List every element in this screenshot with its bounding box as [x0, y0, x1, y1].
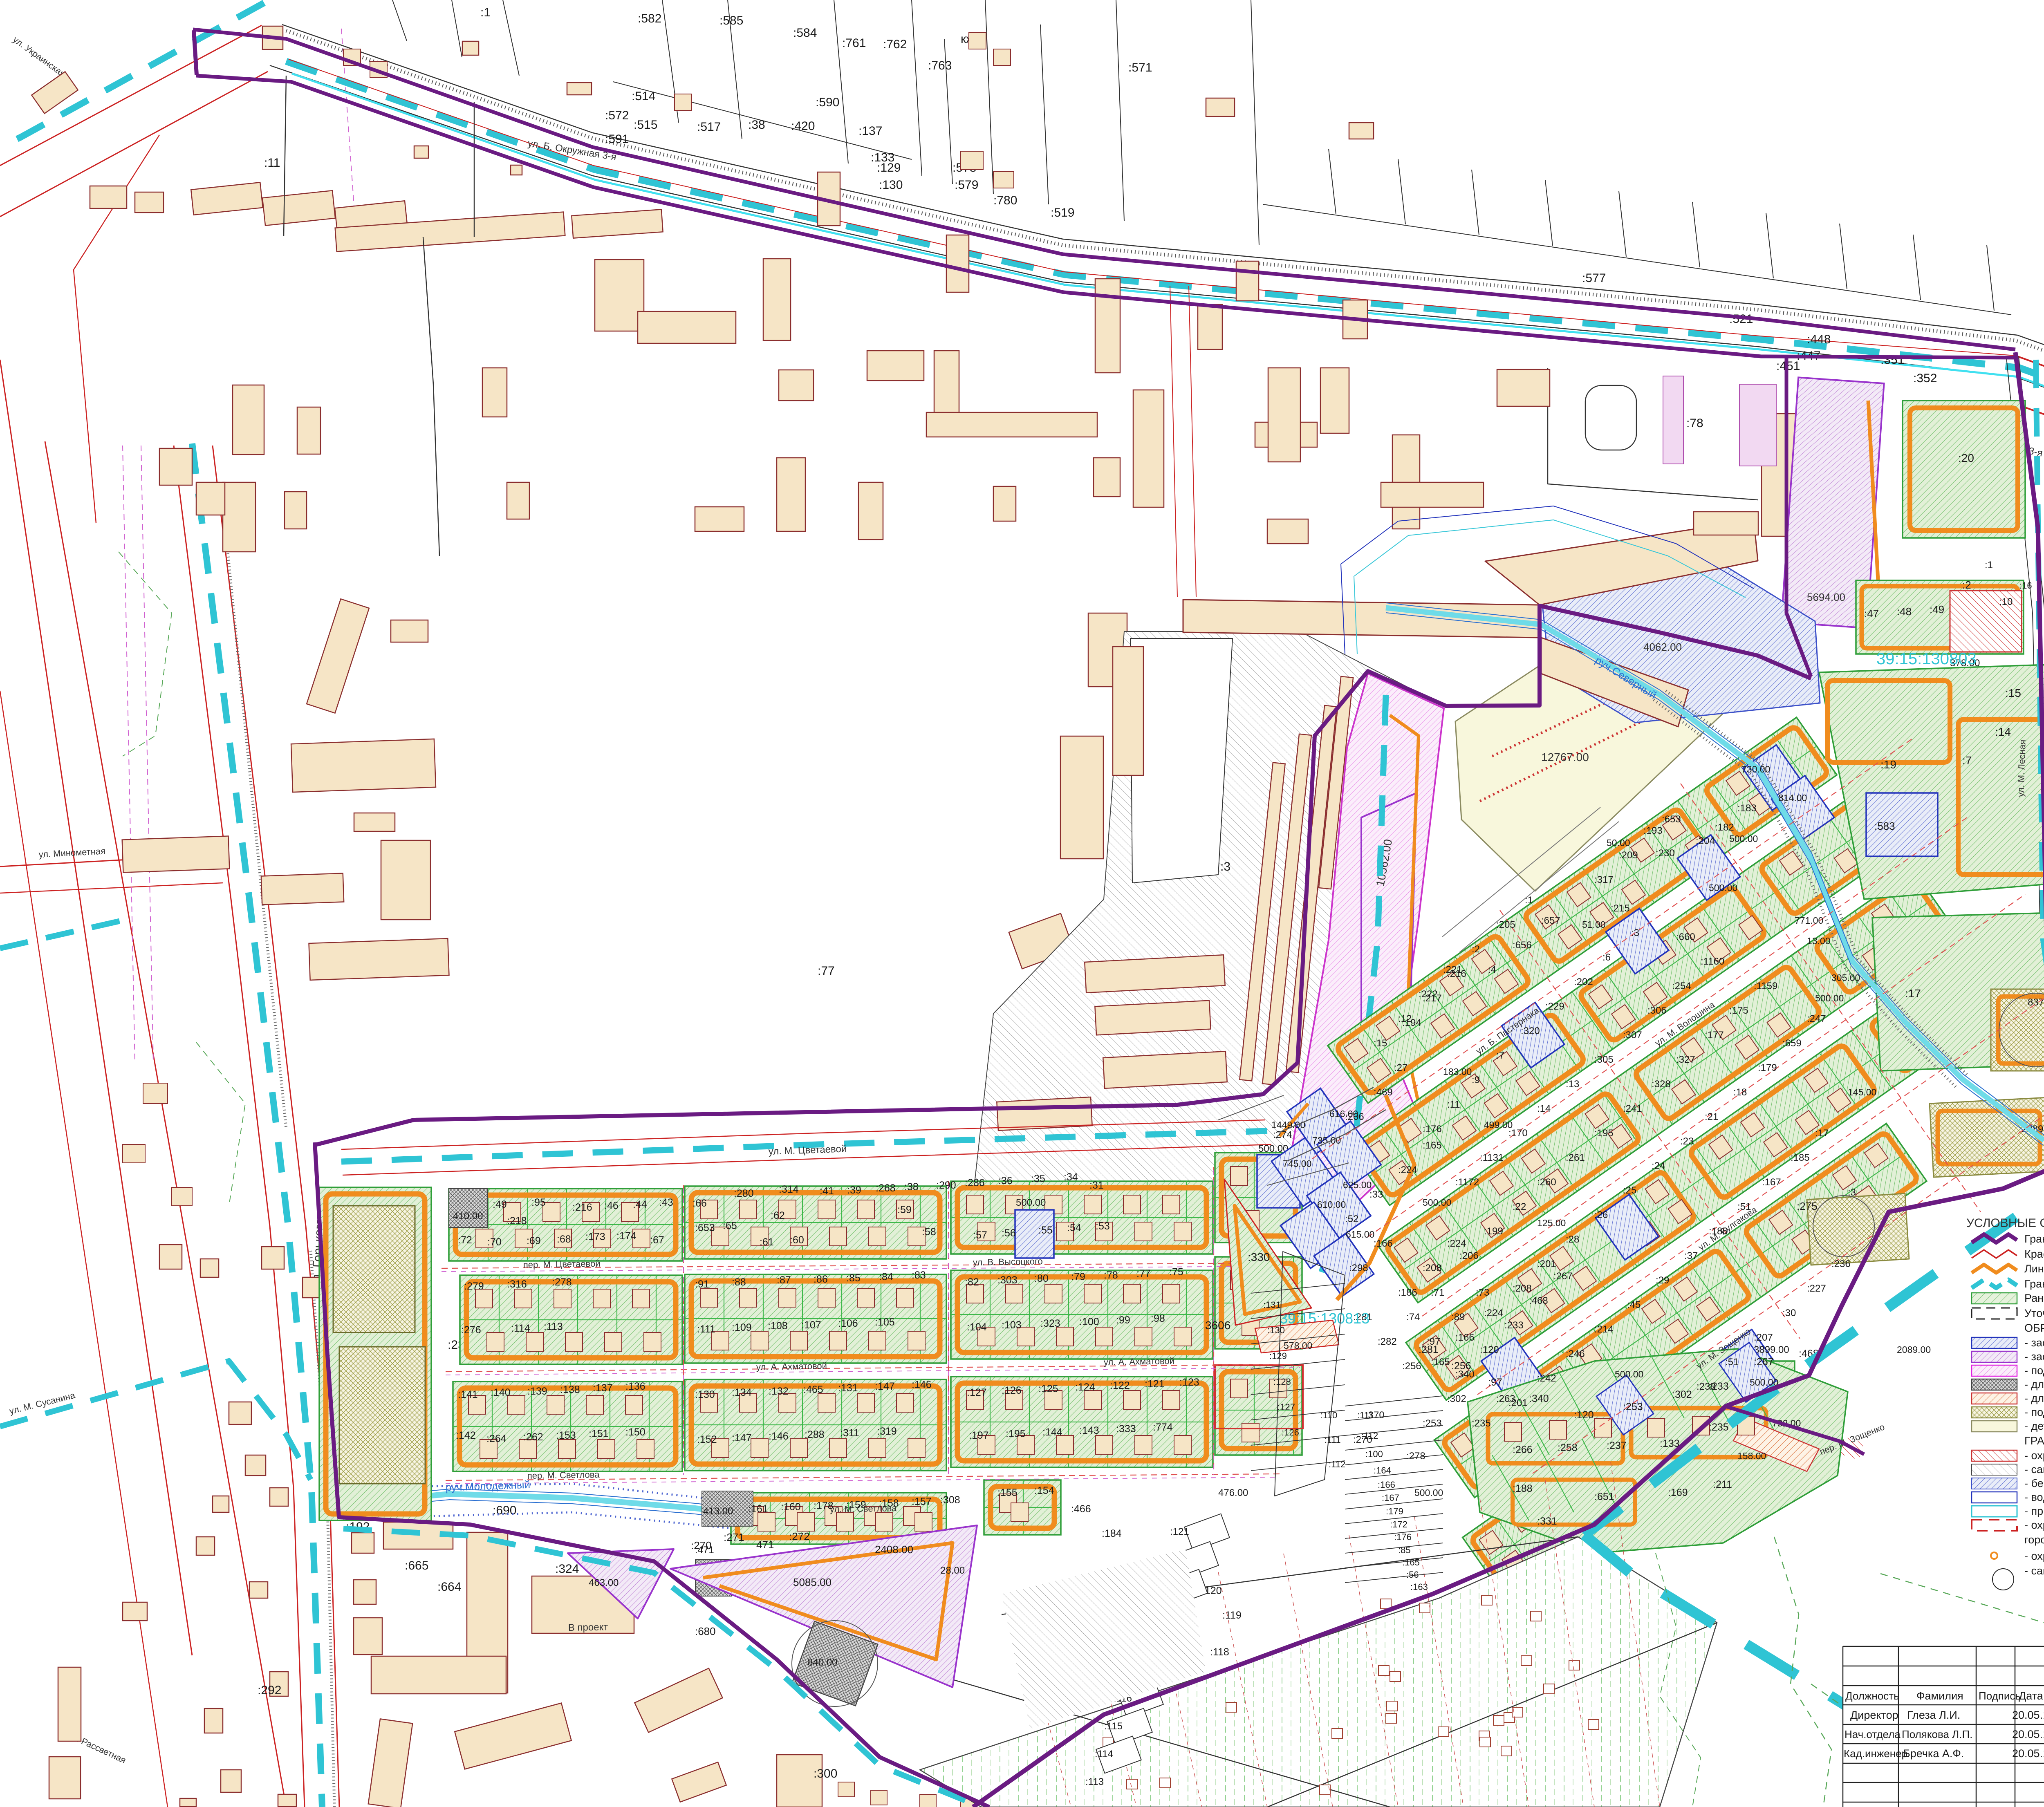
svg-text::279: :279	[464, 1281, 484, 1292]
svg-text::233: :233	[1504, 1320, 1524, 1331]
svg-text:463.00: 463.00	[589, 1577, 619, 1588]
svg-text:20.05.13: 20.05.13	[2012, 1728, 2044, 1740]
svg-text::176: :176	[1394, 1532, 1412, 1542]
svg-text:28.00: 28.00	[940, 1565, 965, 1576]
svg-text::577: :577	[1582, 271, 1606, 285]
svg-text::140: :140	[491, 1387, 511, 1398]
svg-text::237: :237	[1607, 1440, 1627, 1451]
svg-text:625.00: 625.00	[1343, 1180, 1372, 1190]
svg-text:- под строительство объектов з: - под строительство объектов зоны застро…	[2024, 1364, 2044, 1377]
svg-text::224: :224	[1447, 1238, 1466, 1249]
svg-text::52: :52	[1345, 1214, 1358, 1225]
svg-text:- застройка индивидуальными жи: - застройка индивидуальными жилыми домам…	[2024, 1337, 2044, 1349]
svg-text::131: :131	[838, 1382, 858, 1394]
svg-text::308: :308	[940, 1494, 960, 1506]
svg-text::56: :56	[1406, 1570, 1419, 1580]
svg-text::204: :204	[1696, 835, 1715, 846]
svg-text::70: :70	[487, 1236, 502, 1248]
svg-text::656: :656	[1513, 940, 1532, 951]
svg-text::62: :62	[771, 1210, 785, 1221]
svg-text::165: :165	[1423, 1140, 1442, 1151]
svg-text::73: :73	[1476, 1287, 1489, 1298]
svg-text:- охранная зона геодезического: - охранная зона геодезического пункта (П…	[2024, 1550, 2044, 1562]
svg-text::205: :205	[1496, 919, 1515, 930]
svg-text:499.00: 499.00	[1484, 1120, 1513, 1130]
svg-text::113: :113	[544, 1321, 563, 1332]
svg-text::182: :182	[1715, 822, 1734, 833]
svg-text::30: :30	[1782, 1308, 1796, 1319]
svg-text::110: :110	[1320, 1410, 1337, 1420]
svg-text::89: :89	[1451, 1312, 1465, 1323]
svg-text::292: :292	[258, 1684, 281, 1697]
svg-text::103: :103	[1002, 1319, 1022, 1331]
svg-text::12: :12	[1398, 1013, 1412, 1024]
svg-text:814.00: 814.00	[1778, 793, 1807, 803]
svg-text::276: :276	[461, 1324, 481, 1336]
svg-text::111: :111	[697, 1323, 715, 1335]
svg-text::55: :55	[1038, 1225, 1053, 1236]
svg-text::100: :100	[1079, 1316, 1099, 1328]
svg-text::202: :202	[1574, 976, 1593, 987]
svg-text:616.00: 616.00	[1329, 1108, 1358, 1119]
svg-text::6: :6	[1602, 952, 1611, 963]
svg-text::306: :306	[1647, 1005, 1667, 1016]
svg-text:840.00: 840.00	[807, 1657, 837, 1668]
svg-text::3: :3	[1631, 927, 1639, 938]
svg-text::183: :183	[1737, 803, 1757, 814]
svg-text::38: :38	[904, 1181, 919, 1193]
svg-text::51: :51	[1725, 1357, 1739, 1368]
svg-text::154: :154	[1034, 1485, 1054, 1496]
svg-text::763: :763	[928, 59, 952, 72]
svg-text::28: :28	[1566, 1234, 1579, 1245]
svg-text::324: :324	[555, 1562, 579, 1576]
svg-text:183.00: 183.00	[1443, 1066, 1472, 1077]
svg-text::175: :175	[1729, 1005, 1748, 1016]
svg-text::142: :142	[456, 1430, 476, 1441]
svg-text::331: :331	[1537, 1516, 1557, 1527]
svg-text::582: :582	[638, 12, 661, 25]
svg-text:- водоохранная зона: - водоохранная зона	[2024, 1491, 2044, 1503]
svg-text::49: :49	[493, 1199, 507, 1210]
svg-text::31: :31	[1089, 1180, 1104, 1191]
svg-text::77: :77	[1136, 1268, 1151, 1279]
svg-text::320: :320	[1521, 1026, 1540, 1037]
svg-text::176: :176	[1423, 1124, 1442, 1135]
svg-text::665: :665	[405, 1559, 428, 1572]
svg-text::166: :166	[1378, 1480, 1395, 1490]
svg-text::328: :328	[1652, 1079, 1671, 1090]
svg-text::169: :169	[1668, 1487, 1688, 1498]
svg-text::136: :136	[625, 1381, 645, 1392]
svg-text::79: :79	[1071, 1271, 1085, 1283]
svg-text::266: :266	[1513, 1444, 1533, 1455]
svg-text:Ранее образованные и зарегистр: Ранее образованные и зарегистрированные …	[2024, 1292, 2044, 1304]
svg-text::571: :571	[1128, 61, 1152, 74]
svg-text:745.00: 745.00	[1283, 1158, 1311, 1169]
svg-text::112: :112	[1329, 1459, 1345, 1469]
svg-text::127: :127	[1277, 1402, 1295, 1412]
svg-text::288: :288	[805, 1429, 825, 1440]
svg-text::517: :517	[697, 120, 721, 134]
svg-text::774: :774	[1153, 1422, 1173, 1433]
svg-text::227: :227	[1807, 1283, 1826, 1294]
svg-text::280: :280	[734, 1188, 754, 1199]
svg-text::314: :314	[779, 1184, 799, 1195]
svg-text::95: :95	[531, 1197, 546, 1208]
svg-text::208: :208	[1513, 1283, 1532, 1294]
svg-text::201: :201	[1537, 1258, 1556, 1270]
svg-text:Должность: Должность	[1845, 1690, 1899, 1702]
svg-text:610.00: 610.00	[1317, 1199, 1346, 1210]
svg-text::80: :80	[1034, 1273, 1049, 1284]
svg-text::222: :222	[1419, 989, 1438, 1000]
svg-text::221: :221	[1443, 964, 1462, 975]
svg-text::75: :75	[1169, 1266, 1183, 1278]
svg-text::261: :261	[1566, 1152, 1585, 1163]
svg-text::659: :659	[1782, 1038, 1802, 1049]
svg-text::127: :127	[967, 1387, 987, 1398]
svg-text::311: :311	[840, 1427, 859, 1439]
svg-text::35: :35	[1031, 1173, 1045, 1185]
svg-text:- санитарно-защитная зона: - санитарно-защитная зона	[2024, 1463, 2044, 1476]
svg-text::65: :65	[723, 1220, 737, 1232]
svg-text::307: :307	[1623, 1030, 1642, 1041]
svg-text:500.00: 500.00	[1615, 1369, 1643, 1379]
svg-text::184: :184	[1102, 1528, 1122, 1539]
svg-text:Линия отступа от красных линий: Линия отступа от красных линий	[2024, 1263, 2044, 1275]
svg-text::303: :303	[997, 1274, 1018, 1286]
svg-text::108: :108	[768, 1320, 788, 1332]
svg-text::448: :448	[1807, 333, 1831, 346]
svg-text::762: :762	[883, 38, 907, 51]
svg-text::57: :57	[973, 1229, 987, 1241]
svg-text:5694.00: 5694.00	[1807, 591, 1845, 603]
svg-text::114: :114	[1095, 1749, 1113, 1760]
svg-text:ул. А. Ахматовой: ул. А. Ахматовой	[756, 1361, 827, 1372]
svg-text:- под городские скверы, объект: - под городские скверы, объекты озеленен…	[2024, 1406, 2044, 1418]
svg-text::305: :305	[1594, 1054, 1614, 1065]
svg-text::246: :246	[1566, 1348, 1585, 1359]
svg-text::77: :77	[818, 964, 835, 978]
svg-text::98: :98	[1151, 1313, 1165, 1324]
svg-text::146: :146	[912, 1379, 932, 1391]
svg-text:500.00: 500.00	[1815, 993, 1844, 1003]
svg-text::690: :690	[493, 1504, 516, 1517]
svg-text::120: :120	[1480, 1344, 1499, 1355]
svg-text:13.00: 13.00	[1807, 936, 1831, 946]
svg-text::104: :104	[967, 1321, 987, 1333]
svg-text::128: :128	[1273, 1377, 1291, 1387]
svg-text::49: :49	[1930, 603, 1944, 616]
svg-text::14: :14	[1995, 725, 2011, 738]
svg-text:4062.00: 4062.00	[1643, 641, 1682, 653]
svg-text::153: :153	[556, 1430, 576, 1441]
svg-text::126: :126	[1282, 1427, 1299, 1438]
svg-text::254: :254	[1672, 981, 1691, 992]
svg-text:- для перераспределения: - для перераспределения	[2024, 1392, 2044, 1404]
svg-text::15: :15	[2005, 687, 2021, 699]
svg-text:578.00: 578.00	[1284, 1340, 1312, 1351]
svg-text::120: :120	[1574, 1409, 1594, 1421]
svg-text::340: :340	[1529, 1393, 1549, 1404]
svg-text:Подпись: Подпись	[1979, 1690, 2021, 1702]
svg-text::118: :118	[1210, 1646, 1229, 1658]
svg-text::129: :129	[1269, 1351, 1287, 1361]
svg-text::209: :209	[1619, 850, 1638, 861]
svg-text::179: :179	[1758, 1062, 1777, 1073]
svg-text::124: :124	[1075, 1382, 1095, 1393]
svg-text::22: :22	[1513, 1201, 1526, 1212]
svg-text::2: :2	[1472, 944, 1480, 955]
svg-text::68: :68	[557, 1234, 571, 1245]
svg-text::653: :653	[695, 1222, 715, 1234]
svg-text::121: :121	[1145, 1378, 1165, 1390]
svg-text::17: :17	[1815, 1128, 1829, 1139]
svg-text::761: :761	[842, 36, 866, 50]
svg-text:В проект: В проект	[568, 1621, 608, 1633]
svg-text::651: :651	[1594, 1491, 1614, 1502]
svg-text::160: :160	[781, 1501, 801, 1513]
svg-text::113: :113	[1085, 1776, 1104, 1787]
svg-text::211: :211	[1713, 1479, 1732, 1490]
svg-text::99: :99	[1116, 1314, 1130, 1326]
svg-text::657: :657	[1541, 915, 1560, 926]
svg-text:476.00: 476.00	[1218, 1487, 1248, 1498]
svg-text::271: :271	[724, 1531, 744, 1543]
svg-text::333: :333	[1116, 1423, 1136, 1435]
svg-text::1: :1	[480, 6, 491, 19]
svg-text::85: :85	[846, 1272, 861, 1284]
svg-text::780: :780	[993, 194, 1017, 207]
svg-text::150: :150	[625, 1426, 645, 1438]
svg-text::71: :71	[1431, 1287, 1444, 1298]
svg-text::34: :34	[1064, 1171, 1078, 1183]
svg-text::44: :44	[633, 1199, 647, 1210]
svg-text:3606: 3606	[1205, 1319, 1230, 1332]
svg-text::268: :268	[876, 1182, 896, 1194]
svg-text::224: :224	[1398, 1164, 1417, 1176]
svg-text::590: :590	[816, 96, 839, 109]
svg-text::247: :247	[1807, 1013, 1826, 1024]
svg-text:730.00: 730.00	[1741, 764, 1770, 775]
svg-text::15: :15	[1374, 1038, 1387, 1049]
svg-text:Директор: Директор	[1850, 1709, 1898, 1721]
svg-text::97: :97	[1427, 1336, 1440, 1347]
svg-text::132: :132	[769, 1386, 789, 1397]
svg-text::163: :163	[1410, 1582, 1428, 1592]
svg-text:УСЛОВНЫЕ ОБОЗНАЧЕНИЯ: УСЛОВНЫЕ ОБОЗНАЧЕНИЯ	[1966, 1216, 2044, 1230]
svg-text::82: :82	[965, 1276, 979, 1288]
svg-text::151: :151	[589, 1428, 609, 1440]
svg-text::653: :653	[1662, 814, 1681, 825]
svg-text::224: :224	[1484, 1308, 1503, 1319]
svg-text::88: :88	[732, 1276, 746, 1288]
svg-text::272: :272	[789, 1530, 810, 1543]
svg-text::282: :282	[1378, 1336, 1397, 1347]
svg-text:5085.00: 5085.00	[793, 1576, 831, 1588]
svg-text:158.00: 158.00	[1737, 1451, 1766, 1461]
svg-text::33: :33	[1369, 1189, 1383, 1200]
svg-text::47: :47	[1864, 607, 1879, 620]
svg-text::199: :199	[1484, 1226, 1503, 1237]
svg-text::1131: :1131	[1480, 1152, 1504, 1163]
svg-text::106: :106	[838, 1318, 858, 1329]
svg-text::302: :302	[1447, 1393, 1466, 1404]
svg-text:125.00: 125.00	[1537, 1218, 1566, 1228]
svg-text:пер. М. Светлова: пер. М. Светлова	[527, 1469, 600, 1481]
svg-text::186: :186	[1398, 1287, 1417, 1298]
svg-text:305.00: 305.00	[1831, 972, 1860, 983]
svg-text::141: :141	[458, 1389, 478, 1400]
svg-text::469: :469	[1374, 1087, 1393, 1098]
svg-text::67: :67	[650, 1234, 664, 1246]
svg-text:735.00: 735.00	[1312, 1135, 1341, 1146]
svg-text::514: :514	[632, 90, 655, 103]
svg-text:- береговая полоса общего поль: - береговая полоса общего пользования	[2024, 1477, 2044, 1489]
svg-text::78: :78	[1104, 1270, 1118, 1281]
svg-text:471: 471	[756, 1538, 774, 1551]
svg-text::27: :27	[1394, 1062, 1407, 1073]
svg-text::152: :152	[697, 1434, 717, 1445]
svg-text::275: :275	[1797, 1200, 1818, 1212]
svg-text:51.00: 51.00	[1582, 919, 1606, 930]
svg-text::680: :680	[695, 1625, 716, 1637]
svg-text::267: :267	[1754, 1356, 1774, 1368]
svg-text::112: :112	[1361, 1431, 1378, 1441]
svg-text:Границы кадастровых кварталов: Границы кадастровых кварталов	[2024, 1278, 2044, 1290]
svg-text::7: :7	[1496, 1050, 1504, 1061]
svg-text::216: :216	[572, 1202, 592, 1213]
svg-text::130: :130	[1267, 1325, 1285, 1335]
svg-text::229: :229	[1545, 1001, 1564, 1012]
svg-text::330: :330	[1248, 1251, 1270, 1263]
svg-text::352: :352	[1913, 372, 1937, 385]
svg-text::122: :122	[1110, 1380, 1130, 1391]
svg-text:Полякова Л.П.: Полякова Л.П.	[1902, 1728, 1972, 1740]
svg-text::130: :130	[695, 1389, 715, 1400]
svg-text:ОБРАЗУЕМЫЕ ЗЕМЕЛЬНЫЕ УЧАСТКИ: ОБРАЗУЕМЫЕ ЗЕМЕЛЬНЫЕ УЧАСТКИ	[2024, 1322, 2044, 1334]
svg-text::137: :137	[858, 124, 882, 138]
svg-text::214: :214	[1594, 1324, 1614, 1335]
svg-text::134: :134	[732, 1387, 752, 1398]
svg-text::84: :84	[879, 1271, 893, 1283]
svg-text::14: :14	[1537, 1103, 1551, 1114]
svg-text::235: :235	[1709, 1422, 1729, 1433]
svg-text::20: :20	[1958, 452, 1974, 464]
svg-text::3: :3	[1848, 1187, 1856, 1198]
svg-text::159: :159	[846, 1499, 866, 1511]
svg-text::130: :130	[879, 178, 903, 192]
svg-text::264: :264	[486, 1433, 507, 1444]
svg-text::319: :319	[877, 1426, 897, 1437]
svg-text:Границы территории межевания: Границы территории межевания	[2024, 1233, 2044, 1245]
svg-text::316: :316	[507, 1279, 527, 1290]
svg-text:500.00: 500.00	[1016, 1197, 1046, 1208]
svg-text::195: :195	[1006, 1428, 1026, 1440]
svg-text::13: :13	[1566, 1079, 1579, 1090]
svg-text::9: :9	[1472, 1075, 1480, 1086]
svg-text::115: :115	[1104, 1721, 1123, 1732]
svg-text::177: :177	[1705, 1030, 1724, 1041]
svg-text::86: :86	[814, 1274, 828, 1285]
svg-text::2: :2	[1962, 579, 1971, 591]
svg-text::78: :78	[1686, 416, 1703, 430]
svg-text::218: :218	[507, 1215, 527, 1227]
svg-text::69: :69	[527, 1235, 541, 1247]
svg-text::11: :11	[264, 156, 280, 170]
svg-text:Нач.отдела: Нач.отдела	[1845, 1728, 1901, 1740]
svg-text::139: :139	[527, 1386, 547, 1397]
svg-text::164: :164	[1374, 1465, 1391, 1476]
svg-text::1: :1	[1985, 560, 1993, 571]
svg-text::46: :46	[604, 1200, 619, 1211]
svg-text::146: :146	[769, 1431, 789, 1442]
svg-text::241: :241	[1623, 1103, 1642, 1114]
svg-text:500.00: 500.00	[1414, 1487, 1443, 1498]
svg-text::144: :144	[1042, 1426, 1062, 1438]
svg-text::286: :286	[965, 1177, 985, 1189]
svg-text::263: :263	[1496, 1393, 1515, 1404]
svg-text::260: :260	[1537, 1177, 1556, 1188]
svg-text:- для размещения объектов инже: - для размещения объектов инженерной инф…	[2024, 1378, 2044, 1391]
svg-text::267: :267	[1553, 1271, 1573, 1282]
svg-text:- санитарно-защитная зона от с: - санитарно-защитная зона от существующи…	[2024, 1565, 2044, 1577]
svg-text::7: :7	[1962, 754, 1972, 767]
svg-text::1172: :1172	[1455, 1177, 1479, 1188]
svg-text::123: :123	[1179, 1377, 1199, 1388]
svg-text:500.00: 500.00	[1729, 833, 1758, 844]
svg-text:Красная линия: Красная линия	[2024, 1248, 2044, 1260]
svg-text:Бречка А.Ф.: Бречка А.Ф.	[1903, 1747, 1964, 1760]
svg-text::180: :180	[1709, 1226, 1728, 1237]
svg-text::302: :302	[1672, 1389, 1692, 1400]
svg-text::207: :207	[1754, 1332, 1773, 1343]
svg-text::300: :300	[814, 1767, 837, 1780]
svg-text::583: :583	[1874, 820, 1895, 832]
svg-text::155: :155	[997, 1487, 1018, 1498]
svg-text:Фамилия: Фамилия	[1916, 1690, 1963, 1702]
svg-text:410.00: 410.00	[453, 1211, 483, 1222]
svg-text::51: :51	[1737, 1201, 1751, 1212]
svg-text:Кад.инженер: Кад.инженер	[1844, 1747, 1907, 1760]
svg-text::317: :317	[1594, 874, 1614, 885]
svg-text:города-крепости Кенигсберг в а: города-крепости Кенигсберг в апреле 1945…	[2024, 1534, 2044, 1546]
svg-text::107: :107	[801, 1319, 821, 1331]
svg-text::1159: :1159	[1754, 981, 1777, 992]
svg-text:413.00: 413.00	[703, 1506, 733, 1517]
svg-text::16: :16	[2019, 580, 2032, 591]
svg-text:50.00: 50.00	[1607, 837, 1630, 848]
svg-text::1: :1	[1525, 895, 1533, 906]
svg-text::91: :91	[695, 1279, 709, 1290]
svg-text:ул. В. Высоцкого: ул. В. Высоцкого	[973, 1256, 1043, 1267]
svg-text::236: :236	[1831, 1258, 1851, 1270]
svg-text::3: :3	[1220, 860, 1230, 873]
svg-text::54: :54	[1067, 1222, 1081, 1234]
svg-text:145.00: 145.00	[1848, 1087, 1876, 1097]
svg-text::197: :197	[969, 1430, 989, 1441]
svg-text::468: :468	[1529, 1295, 1548, 1306]
svg-text::137: :137	[593, 1382, 613, 1394]
svg-text::147: :147	[732, 1432, 752, 1444]
svg-text::270: :270	[691, 1539, 712, 1552]
svg-text::147: :147	[875, 1381, 895, 1392]
svg-text::327: :327	[1676, 1054, 1695, 1065]
svg-text::29: :29	[1656, 1275, 1669, 1286]
svg-text::143: :143	[1079, 1425, 1099, 1436]
svg-text::165: :165	[1402, 1557, 1420, 1567]
